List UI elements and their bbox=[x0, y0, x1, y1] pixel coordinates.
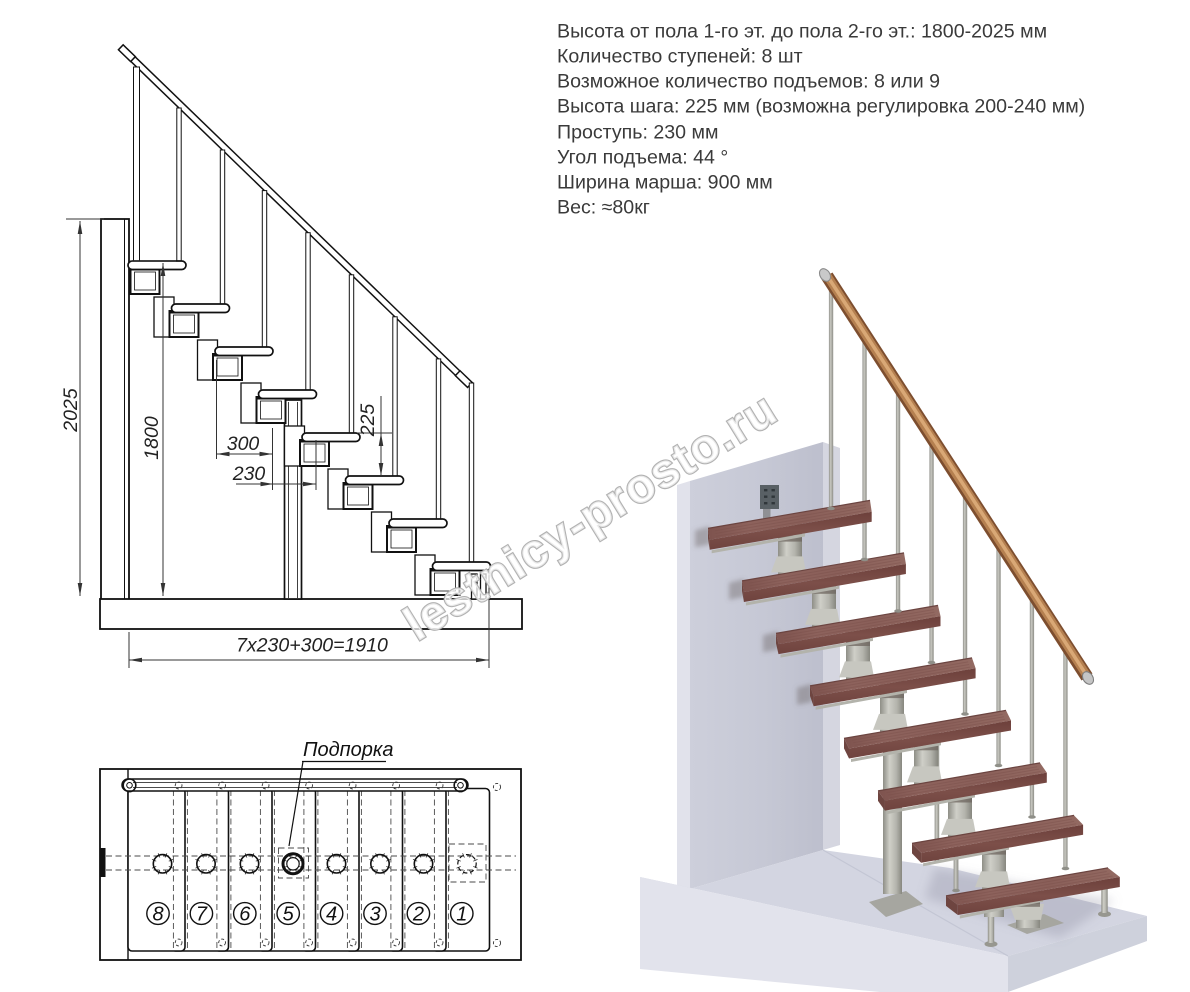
svg-text:Высота шага: 225 мм (возможна: Высота шага: 225 мм (возможна регулировк… bbox=[557, 96, 1085, 118]
svg-text:Подпорка: Подпорка bbox=[303, 739, 394, 761]
svg-text:Высота от пола 1-го эт. до пол: Высота от пола 1-го эт. до пола 2-го эт.… bbox=[557, 21, 1047, 43]
svg-text:7: 7 bbox=[196, 904, 208, 926]
svg-text:230: 230 bbox=[232, 463, 266, 485]
svg-text:6: 6 bbox=[239, 904, 251, 926]
svg-text:2025: 2025 bbox=[60, 388, 82, 433]
svg-text:Возможное количество подъемов:: Возможное количество подъемов: 8 или 9 bbox=[557, 71, 940, 93]
svg-text:Вес: ≈80кг: Вес: ≈80кг bbox=[557, 197, 650, 219]
svg-text:8: 8 bbox=[152, 904, 163, 926]
svg-text:5: 5 bbox=[283, 904, 295, 926]
svg-text:1800: 1800 bbox=[141, 416, 163, 460]
svg-text:Угол подъема: 44 °: Угол подъема: 44 ° bbox=[557, 147, 728, 169]
svg-text:1: 1 bbox=[456, 904, 467, 926]
svg-text:Ширина марша: 900 мм: Ширина марша: 900 мм bbox=[557, 172, 773, 194]
svg-text:225: 225 bbox=[357, 404, 379, 438]
svg-text:2: 2 bbox=[412, 904, 424, 926]
svg-text:Проступь: 230 мм: Проступь: 230 мм bbox=[557, 122, 718, 144]
svg-text:4: 4 bbox=[326, 904, 337, 926]
svg-text:3: 3 bbox=[369, 904, 380, 926]
svg-text:Количество ступеней: 8 шт: Количество ступеней: 8 шт bbox=[557, 46, 803, 68]
svg-text:300: 300 bbox=[227, 433, 260, 455]
svg-text:7x230+300=1910: 7x230+300=1910 bbox=[236, 635, 388, 657]
